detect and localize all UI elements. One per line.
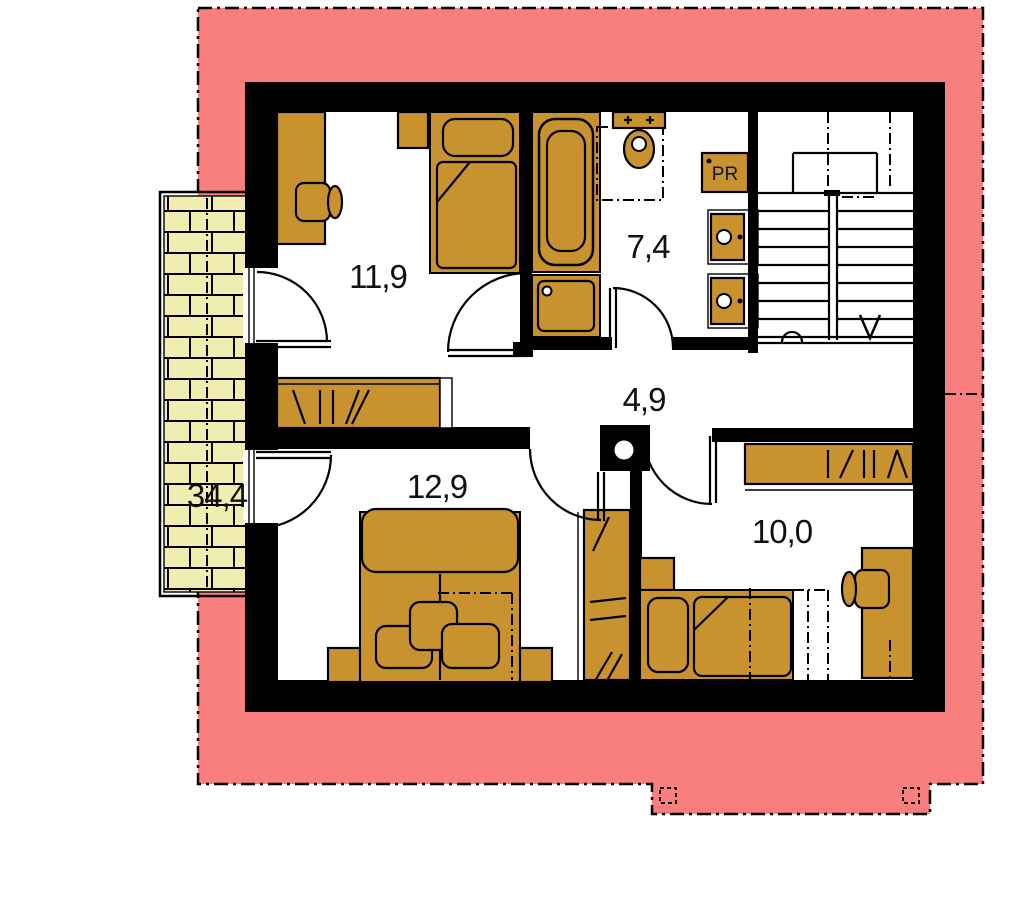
chair-back-upper-left (328, 186, 342, 218)
washbasin-1-bowl (717, 230, 731, 244)
pantry-cabinet-label: PR (712, 164, 738, 185)
desk-upper-left (277, 112, 325, 244)
stairs-west-wall (748, 112, 758, 353)
bathroom-south-wall-right (672, 337, 758, 350)
room-label-hallway: 4,9 (623, 381, 666, 418)
chimney-flue-circle (615, 441, 634, 460)
nightstand-right (520, 648, 552, 682)
blanket-lower-bed (694, 597, 791, 676)
balcony-group (160, 192, 256, 596)
washbasin-1-tap (738, 235, 743, 240)
bed-double-pillow-right (442, 624, 499, 668)
pantry-cabinet-dot (707, 159, 712, 164)
pillow-upper-bed (443, 119, 513, 156)
chair-back-lower-right (842, 572, 856, 606)
wardrobe-divider (277, 378, 440, 428)
shower-base (532, 275, 600, 337)
floor-plan-page: 11,9 7,4 4,9 12,9 10,0 34,4 PR (0, 0, 1033, 899)
desk-lower-right (862, 548, 913, 678)
room-label-bedroom-upper-left: 11,9 (349, 258, 407, 295)
bed-double-duvet (362, 509, 518, 572)
nightstand-left (328, 648, 360, 682)
room-label-bathroom: 7,4 (627, 228, 671, 265)
toilet-bowl-inner (632, 137, 646, 151)
shower-drain (543, 287, 552, 296)
cabinet-upper-left (398, 112, 428, 148)
room-label-bedroom-lower-left: 12,9 (407, 468, 467, 505)
stair-railing-post (824, 190, 840, 196)
washbasin-2-bowl (717, 294, 731, 308)
bathroom-west-wall (520, 112, 532, 352)
bedroom-lower-left-group (328, 509, 552, 682)
bathroom-south-wall-left (532, 337, 612, 350)
bathtub-base (532, 112, 600, 272)
wardrobe-divider-side-panel (440, 378, 452, 428)
washbasin-2-tap (738, 299, 743, 304)
blanket-upper-bed (437, 162, 516, 268)
toilet-cistern (613, 112, 665, 128)
floor-plan-drawing: 11,9 7,4 4,9 12,9 10,0 34,4 PR (0, 0, 1033, 899)
bedrooms-divider-wall (245, 427, 530, 449)
chair-seat-lower-right (855, 570, 889, 608)
chair-seat-upper-left (296, 183, 330, 221)
nightstand-lower-right (640, 558, 674, 590)
wardrobe-vertical (584, 510, 630, 680)
bedroom-right-north-wall (712, 428, 913, 442)
room-label-balcony: 34,4 (187, 477, 248, 514)
room-label-bedroom-lower-right: 10,0 (752, 513, 813, 550)
pillow-lower-bed (648, 598, 688, 672)
